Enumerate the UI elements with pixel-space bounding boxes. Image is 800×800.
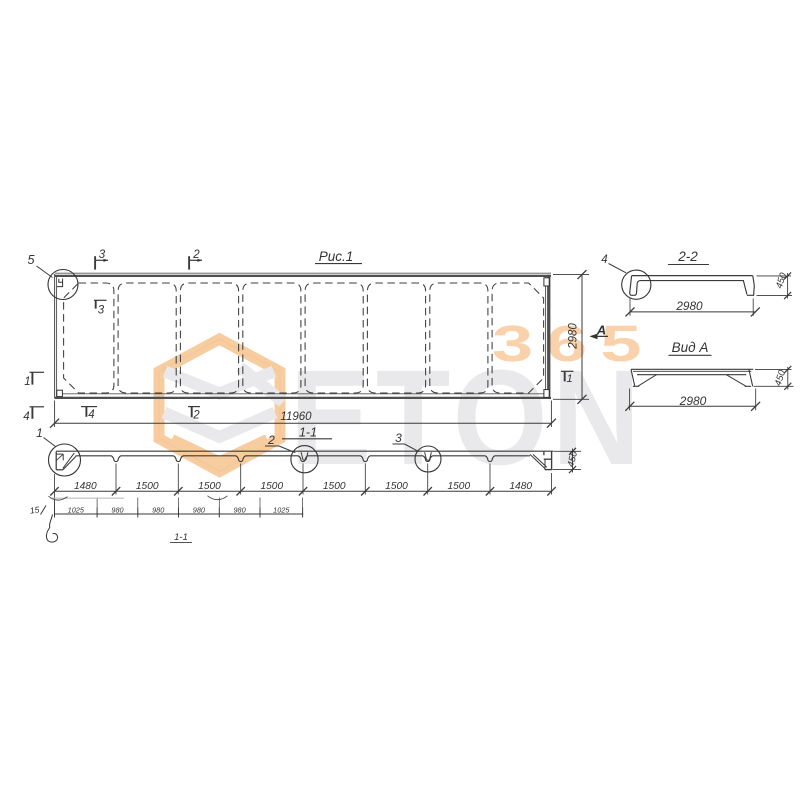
svg-text:3: 3	[99, 249, 106, 261]
svg-text:А: А	[596, 323, 606, 338]
svg-text:15: 15	[29, 504, 40, 515]
svg-text:2: 2	[267, 433, 275, 447]
svg-text:980: 980	[111, 506, 123, 515]
svg-text:1500: 1500	[323, 481, 346, 492]
svg-text:1025: 1025	[273, 506, 290, 515]
svg-text:2980: 2980	[567, 323, 579, 350]
svg-text:980: 980	[234, 506, 246, 515]
svg-text:1: 1	[24, 376, 30, 388]
svg-text:1: 1	[566, 373, 572, 385]
svg-text:1-1: 1-1	[174, 532, 188, 543]
svg-text:Рис.1: Рис.1	[319, 249, 354, 264]
svg-text:2: 2	[192, 410, 200, 422]
svg-text:1500: 1500	[385, 481, 408, 492]
svg-text:2-2: 2-2	[677, 249, 698, 264]
svg-text:1-1: 1-1	[299, 426, 317, 440]
svg-text:980: 980	[193, 506, 205, 515]
svg-text:1480: 1480	[74, 481, 97, 492]
svg-text:1: 1	[36, 426, 43, 440]
svg-text:Вид А: Вид А	[672, 340, 709, 355]
svg-text:2980: 2980	[679, 394, 707, 408]
svg-text:5: 5	[28, 253, 35, 267]
svg-text:1500: 1500	[260, 481, 283, 492]
svg-text:2: 2	[192, 249, 200, 261]
svg-text:4: 4	[88, 409, 94, 421]
svg-text:2980: 2980	[675, 299, 703, 313]
svg-text:4: 4	[23, 411, 29, 423]
svg-text:980: 980	[152, 506, 164, 515]
svg-text:1500: 1500	[136, 481, 159, 492]
svg-text:3: 3	[98, 305, 105, 317]
svg-text:1500: 1500	[447, 481, 470, 492]
svg-text:11960: 11960	[280, 411, 312, 423]
svg-text:3: 3	[395, 431, 402, 445]
svg-text:1025: 1025	[68, 506, 85, 515]
svg-text:1500: 1500	[198, 481, 221, 492]
svg-text:4: 4	[601, 254, 607, 266]
svg-text:1480: 1480	[509, 481, 532, 492]
